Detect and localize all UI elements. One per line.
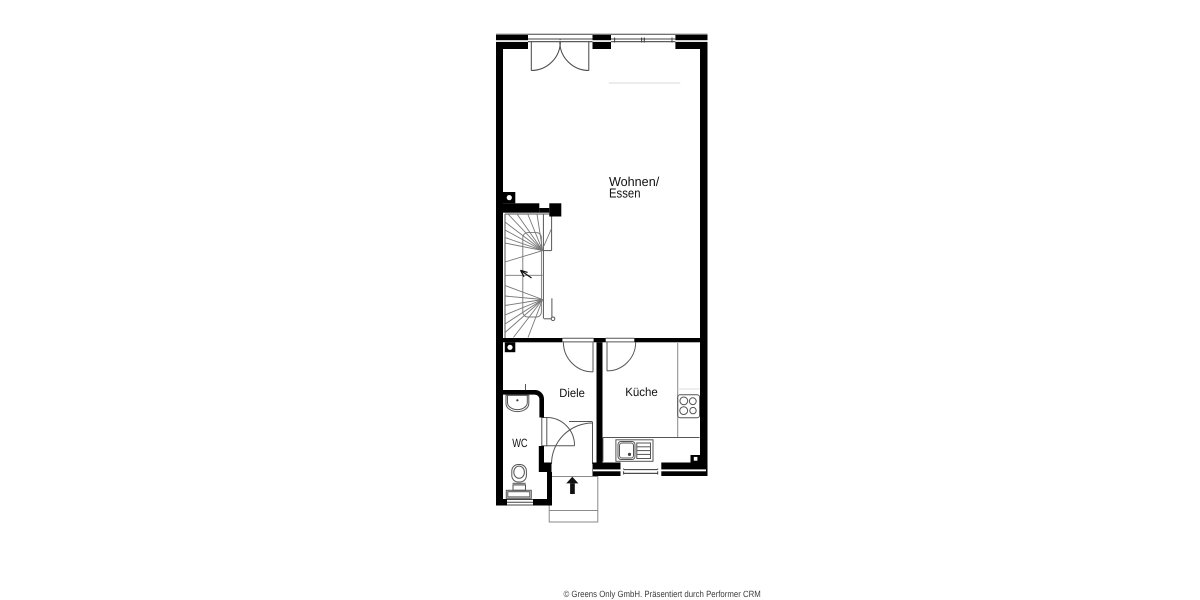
svg-text:Diele: Diele — [559, 386, 585, 400]
svg-text:Küche: Küche — [625, 385, 658, 399]
svg-text:WC: WC — [512, 436, 528, 450]
svg-text:© Greens Only GmbH. Präsentier: © Greens Only GmbH. Präsentiert durch Pe… — [564, 589, 761, 599]
svg-text:Essen: Essen — [609, 185, 641, 200]
